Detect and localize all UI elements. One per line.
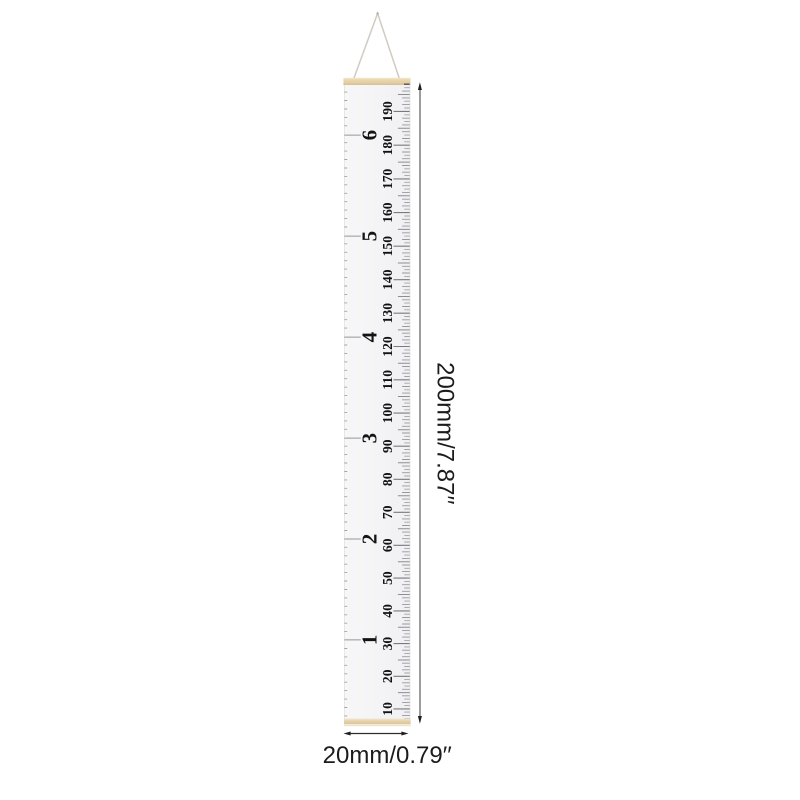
svg-text:50: 50 [380, 571, 395, 585]
svg-text:5: 5 [358, 231, 382, 242]
svg-text:4: 4 [358, 331, 382, 342]
svg-text:100: 100 [380, 403, 395, 424]
svg-text:150: 150 [380, 236, 395, 257]
svg-text:130: 130 [380, 303, 395, 324]
svg-text:190: 190 [380, 101, 395, 122]
svg-text:2: 2 [358, 534, 382, 545]
svg-text:90: 90 [380, 439, 395, 453]
svg-text:80: 80 [380, 472, 395, 486]
svg-text:60: 60 [380, 538, 395, 552]
svg-text:40: 40 [380, 604, 395, 618]
svg-text:30: 30 [380, 637, 395, 651]
svg-text:20: 20 [380, 669, 395, 683]
svg-text:180: 180 [380, 135, 395, 156]
svg-text:3: 3 [358, 433, 382, 444]
svg-text:140: 140 [380, 269, 395, 290]
svg-text:110: 110 [380, 370, 395, 390]
svg-text:10: 10 [380, 702, 395, 716]
svg-text:1: 1 [358, 635, 382, 646]
svg-text:6: 6 [358, 130, 382, 141]
svg-text:20mm/0.79′′: 20mm/0.79′′ [323, 742, 453, 769]
svg-text:70: 70 [380, 505, 395, 519]
svg-text:170: 170 [380, 169, 395, 190]
svg-text:200mm/7.87′′: 200mm/7.87′′ [431, 362, 458, 505]
svg-text:160: 160 [380, 202, 395, 223]
svg-text:120: 120 [380, 336, 395, 357]
